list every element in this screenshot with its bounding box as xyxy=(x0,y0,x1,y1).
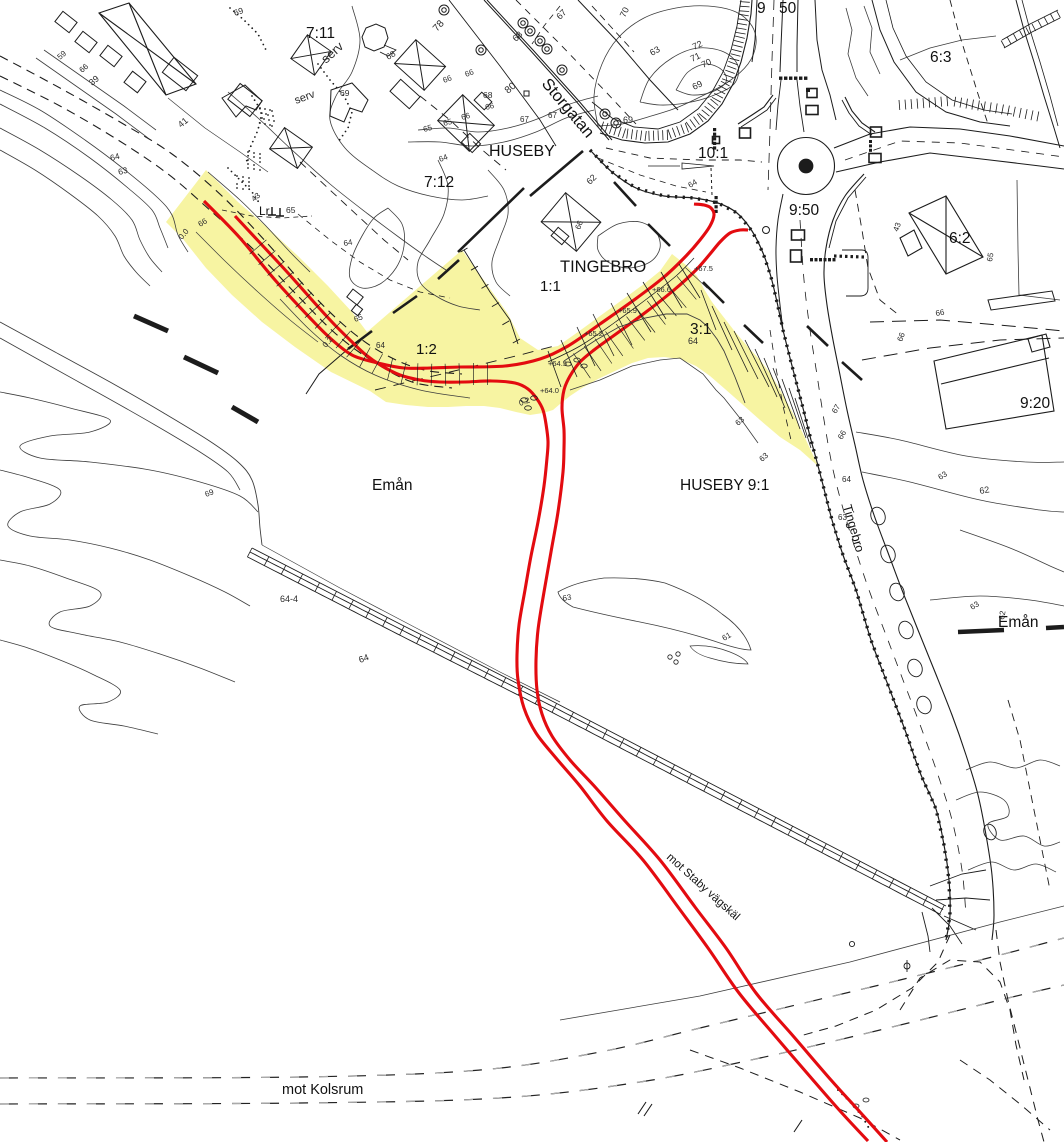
svg-text:65: 65 xyxy=(286,205,296,215)
svg-text:10:1: 10:1 xyxy=(698,145,728,162)
svg-text:HUSEBY: HUSEBY xyxy=(489,143,555,160)
svg-text:68: 68 xyxy=(483,90,493,100)
svg-text:+66.6: +66.6 xyxy=(652,285,671,294)
svg-text:+65.2: +65.2 xyxy=(584,329,603,338)
svg-text:9:50: 9:50 xyxy=(789,202,820,219)
svg-text:1:1: 1:1 xyxy=(540,278,561,295)
svg-text:+65.9: +65.9 xyxy=(618,306,637,315)
svg-text:+64.5: +64.5 xyxy=(548,359,567,368)
svg-text:9:20: 9:20 xyxy=(1020,395,1051,412)
svg-text:Lr: Lr xyxy=(259,204,270,218)
svg-text:62: 62 xyxy=(979,484,991,496)
svg-text:HUSEBY 9:1: HUSEBY 9:1 xyxy=(680,477,769,494)
svg-text:TINGEBRO: TINGEBRO xyxy=(560,258,646,276)
svg-text:9: 9 xyxy=(757,0,766,17)
svg-text:69: 69 xyxy=(340,88,350,98)
svg-text:+64.0: +64.0 xyxy=(540,386,559,395)
svg-text:mot Kolsrum: mot Kolsrum xyxy=(282,1082,363,1098)
svg-text:7:11: 7:11 xyxy=(306,25,335,42)
svg-text:Emån: Emån xyxy=(372,477,413,494)
svg-text:7:12: 7:12 xyxy=(424,174,454,191)
svg-text:6:3: 6:3 xyxy=(930,49,952,66)
svg-text:50: 50 xyxy=(779,0,797,17)
svg-text:64: 64 xyxy=(842,475,851,484)
svg-text:64: 64 xyxy=(688,336,698,346)
svg-text:64: 64 xyxy=(376,341,385,350)
svg-text:69: 69 xyxy=(623,115,633,125)
svg-text:63: 63 xyxy=(838,513,847,522)
svg-text:+67.5: +67.5 xyxy=(694,264,713,273)
svg-text:64-4: 64-4 xyxy=(280,594,298,604)
svg-text:67: 67 xyxy=(548,111,557,120)
svg-text:6:2: 6:2 xyxy=(949,230,971,247)
svg-text:67: 67 xyxy=(520,115,529,124)
svg-text:1:2: 1:2 xyxy=(416,341,437,358)
